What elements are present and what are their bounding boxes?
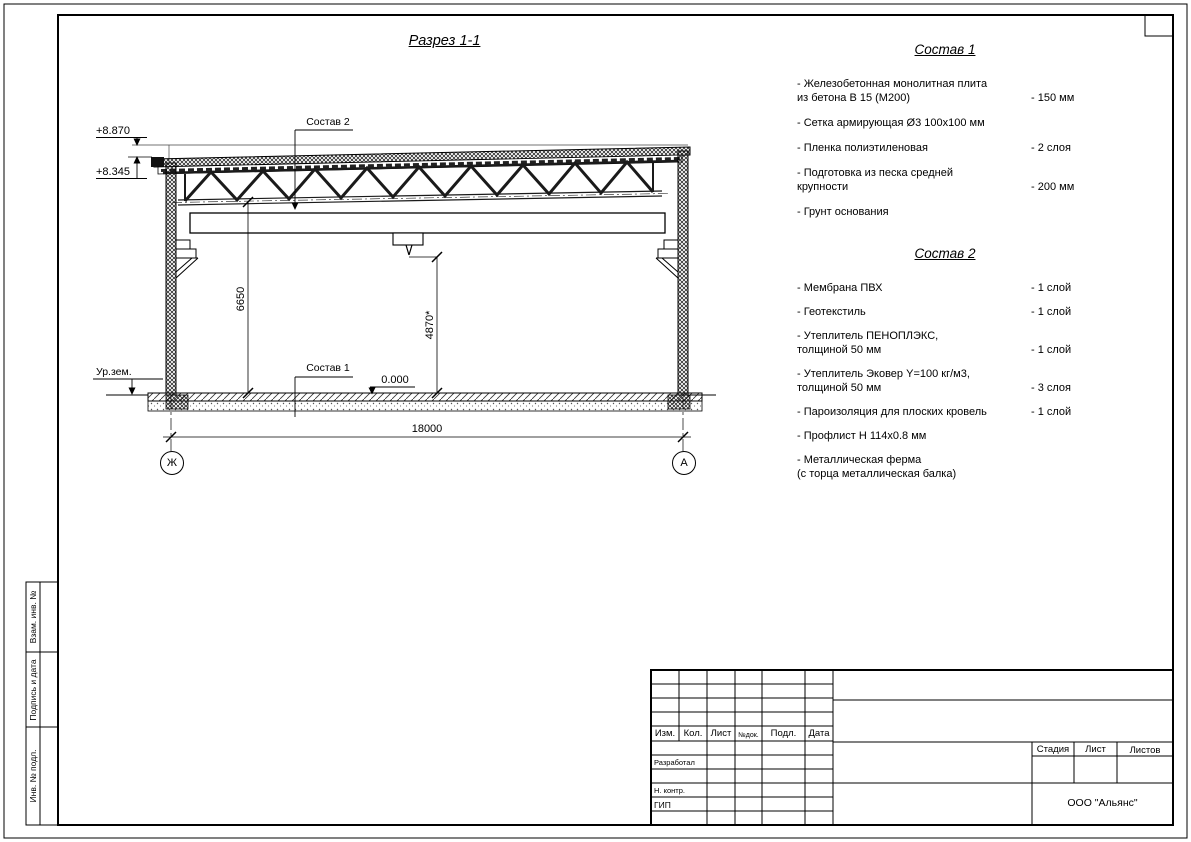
floor-slab	[106, 393, 716, 411]
corner-doc-number-box	[1145, 15, 1173, 36]
side-label-vzam: Взам. инв. №	[28, 591, 38, 644]
hook-block	[393, 233, 423, 245]
list-item: - Пленка полиэтиленовая - 2 слоя	[797, 141, 1093, 155]
column-right	[678, 151, 688, 395]
foundation-left	[166, 395, 188, 409]
tb-sheet-header: Лист	[1074, 743, 1117, 756]
column-left	[166, 163, 176, 395]
tb-role-developed: Разработал	[654, 757, 695, 769]
tb-stage-header: Стадия	[1032, 743, 1074, 756]
axis-bubble-right: А	[672, 451, 696, 475]
tb-company: ООО "Альянс"	[1032, 797, 1173, 810]
list-item: - Пароизоляция для плоских кровель - 1 с…	[797, 405, 1093, 419]
tb-role-ncontr: Н. контр.	[654, 785, 685, 797]
list-item: - Мембрана ПВХ - 1 слой	[797, 281, 1093, 295]
list-item: - Утеплитель ПЕНОПЛЭКС, толщиной 50 мм -…	[797, 329, 1093, 357]
tb-col-data: Дата	[805, 727, 833, 740]
list-item: - Подготовка из песка средней крупности …	[797, 166, 1093, 194]
crane-beam	[190, 213, 665, 255]
tb-sheets-header: Листов	[1117, 744, 1173, 757]
columns	[166, 151, 688, 395]
list-item: - Железобетонная монолитная плита из бет…	[797, 77, 1093, 105]
dim-height-mid-label: 4870*	[424, 311, 436, 340]
drawing-sheet: Разрез 1-1 +8.870 +8.345 Ур.зем. 0.000 С…	[0, 0, 1191, 842]
spec2-title: Состав 2	[797, 246, 1093, 261]
callout-roof-label: Состав 2	[299, 116, 357, 128]
spec-list-1: Состав 1 - Железобетонная монолитная пли…	[797, 42, 1093, 230]
corbels	[176, 240, 678, 278]
tb-role-gip: ГИП	[654, 799, 671, 811]
list-item: - Сетка армирующая Ø3 100х100 мм	[797, 116, 1093, 130]
ground-level-label: Ур.зем.	[96, 366, 132, 378]
tb-col-izm: Изм.	[651, 727, 679, 740]
list-item: - Геотекстиль - 1 слой	[797, 305, 1093, 319]
list-item: - Профлист Н 114х0.8 мм	[797, 429, 1093, 443]
callout-floor-label: Состав 1	[299, 362, 357, 374]
side-label-inv: Инв. № подл.	[28, 750, 38, 803]
zero-level-label: 0.000	[374, 374, 416, 386]
roof-left-endcap	[151, 157, 164, 167]
dim-span-label: 18000	[397, 423, 457, 435]
side-label-podpis: Подпись и дата	[28, 659, 38, 720]
elevation-eaves-label: +8.345	[96, 166, 147, 179]
dim-height-left-label: 6650	[235, 287, 247, 311]
axis-bubble-left: Ж	[160, 451, 184, 475]
spec-list-2: Состав 2 - Мембрана ПВХ - 1 слой - Геоте…	[797, 246, 1093, 491]
tb-col-kol: Кол.	[679, 727, 707, 740]
elevation-top-label: +8.870	[96, 125, 147, 138]
spec1-title: Состав 1	[797, 42, 1093, 57]
list-item: - Грунт основания	[797, 205, 1093, 219]
tb-col-podp: Подл.	[762, 727, 805, 740]
list-item: - Утеплитель Эковер Y=100 кг/м3, толщино…	[797, 367, 1093, 395]
section-title: Разрез 1-1	[392, 35, 497, 47]
list-item: - Металлическая ферма (с торца металличе…	[797, 453, 1093, 481]
tb-col-ndok: №док.	[735, 729, 762, 742]
tb-col-list: Лист	[707, 727, 735, 740]
foundation-right	[668, 395, 690, 409]
